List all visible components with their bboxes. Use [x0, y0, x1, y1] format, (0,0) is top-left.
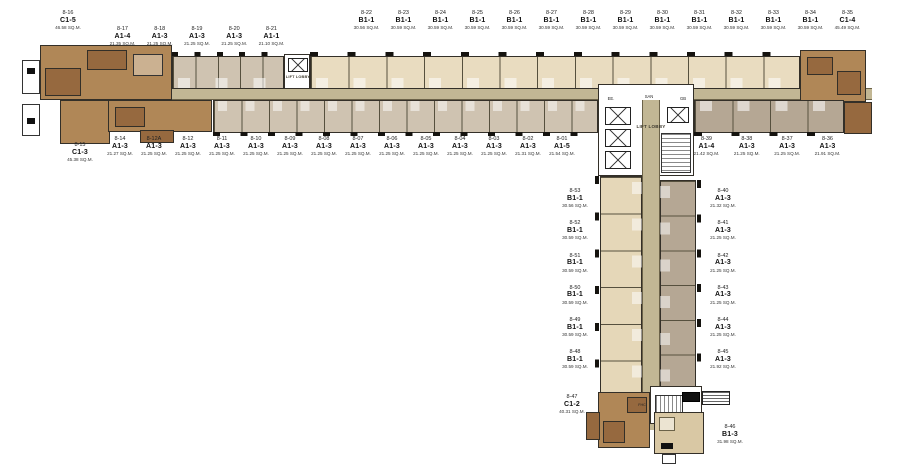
unit-label: 8-29 B1-1 30.59 SQ.M. [607, 10, 644, 30]
left-service-box [22, 60, 40, 94]
unit-label: 8-26 B1-1 30.59 SQ.M. [496, 10, 533, 30]
balcony-ticks-top-left [172, 52, 284, 56]
unit-label: 8-04 A1-3 21.25 SQ.M. [443, 136, 477, 156]
unit-c1-5 [40, 45, 172, 100]
unit-label: 8-47 C1-2 40.31 SQ.M. [548, 394, 596, 414]
labels-wing-right: 8-40 A1-3 21.32 SQ.M. 8-41 A1-3 21.25 SQ… [700, 188, 746, 370]
service-block [27, 118, 35, 124]
unit-label: 8-24 B1-1 30.59 SQ.M. [422, 10, 459, 30]
corridor-horizontal [58, 88, 872, 100]
floor-plan: LIFT LOBBY EE. SAN GB LIFT LOBBY [0, 0, 900, 470]
unit-label: 8-06 A1-3 21.25 SQ.M. [375, 136, 409, 156]
lift-shaft-icon [605, 129, 631, 147]
lift-lobby-label: LIFT LOBBY [636, 124, 666, 130]
unit-label: 8-30 B1-1 30.59 SQ.M. [644, 10, 681, 30]
unit-label: 8-41 A1-3 21.25 SQ.M. [700, 220, 746, 240]
unit-label: 8-36 A1-3 21.91 SQ.M. [809, 136, 846, 156]
unit-label: 8-49 B1-1 30.59 SQ.M. [552, 317, 598, 337]
service-block [661, 443, 673, 449]
unit-pods [213, 101, 598, 111]
unit-label: 8-20 A1-3 21.25 SQ.M. [216, 26, 253, 46]
unit-label: 8-11 A1-3 21.25 SQ.M. [205, 136, 239, 156]
unit-label: 8-38 A1-3 21.25 SQ.M. [728, 136, 765, 156]
unit-label: 8-17 A1-4 21.35 SQ.M. [104, 26, 141, 46]
labels-top-row: 8-22 B1-1 30.56 SQ.M. 8-23 B1-1 30.59 SQ… [348, 10, 856, 30]
labels-wing-left: 8-53 B1-1 30.56 SQ.M. 8-52 B1-1 30.59 SQ… [552, 188, 598, 370]
unit-label: 8-40 A1-3 21.32 SQ.M. [700, 188, 746, 208]
room-block [586, 412, 600, 440]
unit-label: 8-27 B1-1 30.59 SQ.M. [533, 10, 570, 30]
unit-label: 8-22 B1-1 30.56 SQ.M. [348, 10, 385, 30]
unit-label: 8-37 A1-3 21.25 SQ.M. [769, 136, 806, 156]
room-block [115, 107, 145, 127]
unit-pods [310, 78, 800, 88]
equipment-block [682, 392, 700, 402]
unit-label: 8-05 A1-3 21.25 SQ.M. [409, 136, 443, 156]
gb-room-label: GB [675, 97, 691, 102]
balcony-ticks-top [310, 52, 800, 56]
unit-label: 8-52 B1-1 30.59 SQ.M. [552, 220, 598, 240]
unit-label: 8-21 A1-1 21.10 SQ.M. [253, 26, 290, 46]
unit-label: 8-12 A1-3 21.25 SQ.M. [171, 136, 205, 156]
unit-label: 8-35 C1-4 45.49 SQ.M. [829, 10, 866, 30]
unit-label: 8-23 B1-1 30.59 SQ.M. [385, 10, 422, 30]
louver-block [702, 391, 730, 405]
lift-shaft-icon [288, 58, 308, 72]
unit-c1-3 [108, 100, 212, 132]
unit-label: 8-18 A1-3 21.25 SQ.M. [141, 26, 178, 46]
room-block [87, 50, 127, 70]
unit-pods [660, 180, 670, 388]
unit-c1-2 [598, 392, 650, 448]
unit-label: 8-10 A1-3 21.25 SQ.M. [239, 136, 273, 156]
room-block [659, 417, 675, 431]
san-room-label: SAN [641, 95, 657, 100]
unit-c1-4 [800, 50, 866, 102]
unit-label: 8-46 B1-3 31.98 SQ.M. [706, 424, 754, 444]
unit-label: 8-14 A1-3 21.27 SQ.M. [103, 136, 137, 156]
lift-shaft-icon [605, 151, 631, 169]
labels-top-left: 8-17 A1-4 21.35 SQ.M. 8-18 A1-3 21.25 SQ… [104, 26, 290, 46]
unit-label: 8-12A A1-3 21.25 SQ.M. [137, 136, 171, 156]
unit-label: 8-44 A1-3 21.25 SQ.M. [700, 317, 746, 337]
lift-lobby-left: LIFT LOBBY [284, 54, 310, 89]
stairwell [661, 133, 691, 173]
unit-pods [172, 78, 284, 88]
unit-label: 8-33 B1-1 30.59 SQ.M. [755, 10, 792, 30]
unit-label: 8-32 B1-1 30.59 SQ.M. [718, 10, 755, 30]
unit-label: 8-07 A1-3 21.25 SQ.M. [341, 136, 375, 156]
unit-label: 8-45 A1-3 21.92 SQ.M. [700, 349, 746, 369]
unit-label: 8-34 B1-1 30.59 SQ.M. [792, 10, 829, 30]
unit-label: 8-28 B1-1 30.59 SQ.M. [570, 10, 607, 30]
unit-label: 8-19 A1-3 21.25 SQ.M. [179, 26, 216, 46]
unit-label: 8-53 B1-1 30.56 SQ.M. [552, 188, 598, 208]
fhc-label: FHC [634, 404, 650, 408]
room-block [807, 57, 833, 75]
unit-label: 8-48 B1-1 30.59 SQ.M. [552, 349, 598, 369]
lift-shaft-icon [667, 107, 689, 123]
unit-label: 8-25 B1-1 30.59 SQ.M. [459, 10, 496, 30]
right-end-unit [844, 102, 872, 134]
service-box [662, 454, 676, 464]
unit-pods [694, 101, 844, 111]
room-block [603, 421, 625, 443]
labels-bottom-row: 8-14 A1-3 21.27 SQ.M. 8-12A A1-3 21.25 S… [103, 136, 579, 156]
room-block [133, 54, 163, 76]
ee-room-label: EE. [603, 97, 619, 102]
unit-label: 8-08 A1-3 21.25 SQ.M. [307, 136, 341, 156]
service-block [27, 68, 35, 74]
unit-label: 8-31 B1-1 30.59 SQ.M. [681, 10, 718, 30]
unit-label: 8-03 A1-3 21.25 SQ.M. [477, 136, 511, 156]
lift-shaft-icon [605, 107, 631, 125]
unit-label: 8-15 C1-3 45.38 SQ.M. [52, 142, 108, 162]
unit-label: 8-09 A1-3 21.25 SQ.M. [273, 136, 307, 156]
labels-bottom-right-row: 8-39 A1-4 21.42 SQ.M. 8-38 A1-3 21.25 SQ… [688, 136, 846, 156]
unit-label: 8-02 A1-3 21.31 SQ.M. [511, 136, 545, 156]
unit-label: 8-16 C1-5 46.58 SQ.M. [40, 10, 96, 30]
unit-b1-3 [654, 412, 704, 454]
corridor-vertical [642, 100, 660, 430]
unit-label: 8-51 B1-1 30.59 SQ.M. [552, 253, 598, 273]
unit-label: 8-01 A1-5 21.54 SQ.M. [545, 136, 579, 156]
unit-label: 8-50 B1-1 30.59 SQ.M. [552, 285, 598, 305]
unit-label: 8-39 A1-4 21.42 SQ.M. [688, 136, 725, 156]
unit-label: 8-42 A1-3 21.25 SQ.M. [700, 253, 746, 273]
room-block [45, 68, 81, 96]
unit-pods [632, 176, 642, 396]
room-block [837, 71, 861, 95]
unit-label: 8-43 A1-3 21.25 SQ.M. [700, 285, 746, 305]
lift-lobby-left-label: LIFT LOBBY [285, 75, 311, 80]
